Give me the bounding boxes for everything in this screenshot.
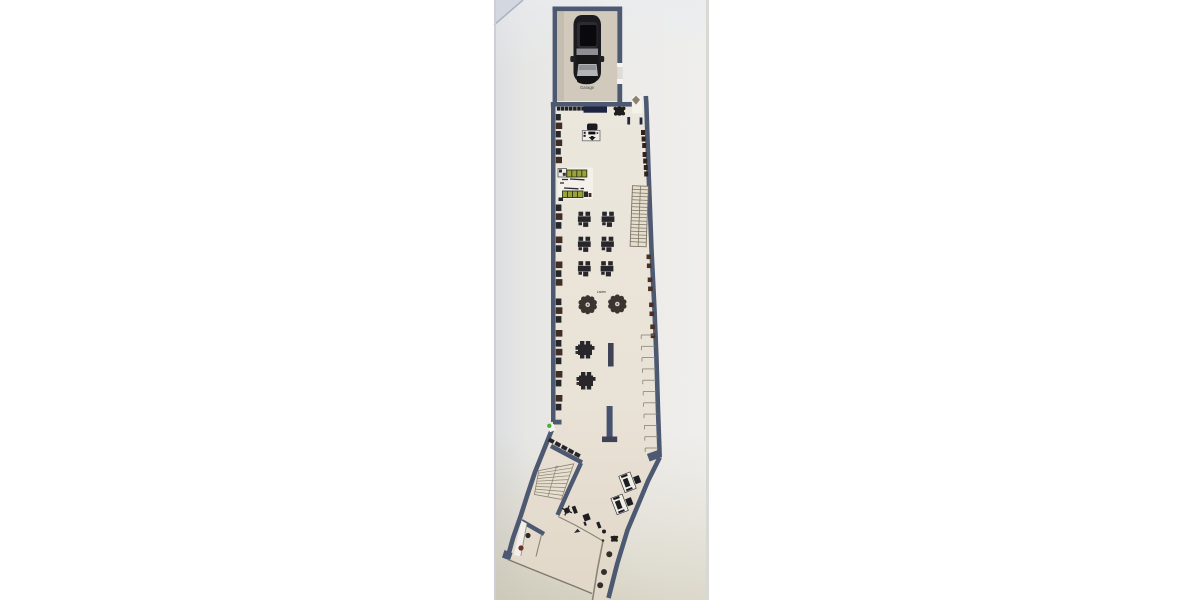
svg-text:Garage: Garage (580, 85, 595, 90)
svg-text:Laden: Laden (597, 290, 607, 294)
